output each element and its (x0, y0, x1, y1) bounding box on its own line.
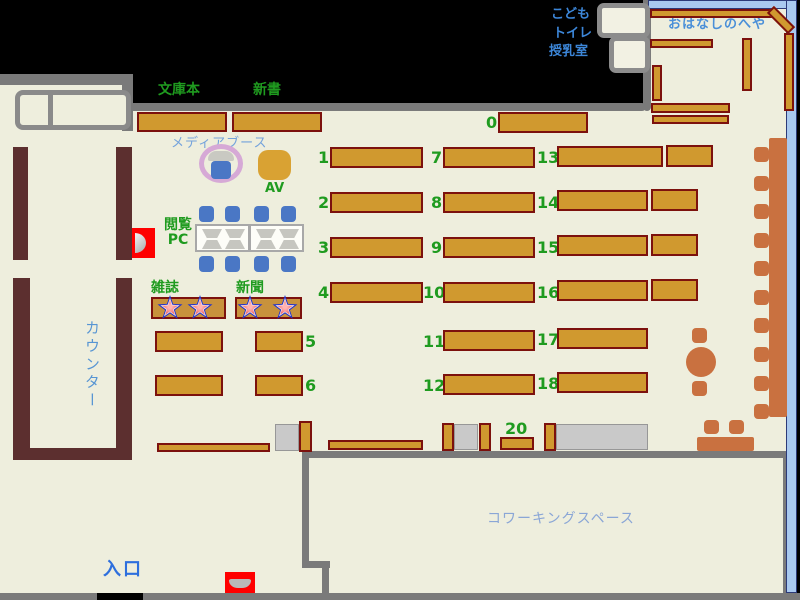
shelf-0 (498, 112, 588, 133)
shelf-14-label: 14 (537, 193, 559, 213)
shelf-11 (443, 330, 535, 351)
star-icon (237, 295, 263, 321)
shelf-0-label: 0 (486, 113, 497, 133)
bookshelf (255, 375, 303, 396)
service-desk (15, 90, 131, 130)
new-books-shelf (232, 112, 322, 132)
table (454, 424, 478, 450)
pc-chair (254, 206, 269, 222)
shelf-7 (443, 147, 535, 168)
new-books-label: 新書 (253, 83, 281, 98)
wall-coworking-top (302, 451, 789, 458)
pc-table (249, 224, 304, 252)
toilet-room-lower (609, 36, 650, 73)
counter-wall (116, 278, 132, 448)
shelf-12-label: 12 (423, 376, 445, 396)
shelf-4 (330, 282, 423, 303)
newspapers-label: 新聞 (236, 281, 264, 296)
monitor-icon (202, 229, 222, 238)
pc-chair (199, 256, 214, 272)
paperback-label: 文庫本 (158, 83, 200, 98)
toilet-label: トイレ (553, 26, 592, 41)
wall-main-top (133, 103, 646, 111)
pc-table (195, 224, 250, 252)
entrance-return-slot (225, 572, 255, 593)
coworking-space-label: コワーキングスペース (487, 512, 635, 527)
monitor-icon (225, 240, 245, 249)
av-label: AV (265, 181, 284, 196)
shelf-18 (557, 372, 648, 393)
monitor-icon (225, 229, 245, 238)
security-gate (132, 228, 155, 258)
desk-divider (48, 95, 53, 125)
return-slot-icon (229, 579, 251, 588)
chair (704, 420, 719, 434)
shelf-3 (330, 237, 423, 258)
chair (729, 420, 744, 434)
chair (754, 147, 769, 162)
chair (754, 318, 769, 333)
gate-sensor-icon (135, 233, 146, 253)
shelf-3-label: 3 (318, 238, 329, 258)
shelf-divider (544, 423, 556, 451)
shelf-16-label: 16 (537, 283, 559, 303)
low-shelf (328, 440, 423, 450)
wall-top-left (0, 74, 133, 85)
shelf-divider (299, 421, 312, 452)
story-room-shelf (652, 115, 729, 124)
bookshelf (651, 279, 698, 301)
av-station (258, 150, 291, 180)
counter-wall (116, 147, 132, 260)
chair (754, 261, 769, 276)
shelf-14 (557, 190, 648, 211)
shelf-12 (443, 374, 535, 395)
chair (754, 176, 769, 191)
story-room-shelf (784, 33, 794, 111)
counter-wall (13, 278, 30, 460)
pc-chair (281, 256, 296, 272)
bookshelf (155, 331, 223, 352)
shelf-4-label: 4 (318, 283, 329, 303)
story-room-label: おはなしのへや (668, 17, 766, 32)
bookshelf (651, 189, 698, 211)
toilet-room-upper (597, 3, 650, 38)
window-counter-bench (769, 138, 787, 417)
library-floor-map: こども トイレ 授乳室 おはなしのへや 文庫本 新書 0 メディアブース AV (0, 0, 800, 600)
chair (754, 404, 769, 419)
monitor-icon (202, 240, 222, 249)
shelf-17 (557, 328, 648, 349)
shelf-16 (557, 280, 648, 301)
story-room-shelf (652, 65, 662, 101)
monitor-icon (279, 229, 299, 238)
low-shelf (157, 443, 270, 452)
bookshelf (155, 375, 223, 396)
wall-bottom-right (143, 593, 800, 600)
chair (754, 204, 769, 219)
entrance-label: 入口 (103, 562, 143, 577)
wall-bottom-left (0, 593, 97, 600)
shelf-20 (500, 437, 534, 450)
shelf-5-label: 5 (305, 332, 316, 352)
table (556, 424, 648, 450)
shelf-8 (443, 192, 535, 213)
star-icon (187, 295, 213, 321)
shelf-divider (479, 423, 491, 451)
shelf-18-label: 18 (537, 374, 559, 394)
shelf-13 (557, 146, 663, 167)
story-room-shelf (650, 9, 772, 18)
nursing-room-label: 授乳室 (549, 44, 588, 59)
shelf-2 (330, 192, 423, 213)
shelf-1-label: 1 (318, 148, 329, 168)
story-room-shelf (650, 39, 713, 48)
table (697, 437, 754, 451)
monitor-icon (256, 240, 276, 249)
shelf-15 (557, 235, 648, 256)
story-room-shelf (651, 103, 730, 113)
shelf-10-label: 10 (423, 283, 445, 303)
bookshelf (651, 234, 698, 256)
wall-coworking-left (302, 451, 309, 568)
chair (754, 347, 769, 362)
shelf-2-label: 2 (318, 193, 329, 213)
chair (754, 376, 769, 391)
star-icon (157, 295, 183, 321)
shelf-20-label: 20 (505, 419, 527, 439)
shelf-6-label: 6 (305, 376, 316, 396)
shelf-9-label: 9 (431, 238, 442, 258)
shelf-15-label: 15 (537, 238, 559, 258)
chair (692, 381, 707, 396)
bookshelf (255, 331, 303, 352)
chair (692, 328, 707, 343)
media-booth-monitor (208, 151, 234, 161)
pc-chair (225, 256, 240, 272)
bookshelf (666, 145, 713, 167)
monitor-icon (279, 240, 299, 249)
pc-chair (199, 206, 214, 222)
monitor-icon (256, 229, 276, 238)
round-table (686, 347, 716, 377)
shelf-13-label: 13 (537, 148, 559, 168)
paperback-shelf (137, 112, 227, 132)
browsing-pc-label: 閲覧 PC (163, 218, 193, 248)
shelf-9 (443, 237, 535, 258)
shelf-11-label: 11 (423, 332, 445, 352)
pc-chair (254, 256, 269, 272)
counter-wall (13, 448, 132, 460)
pc-chair (225, 206, 240, 222)
shelf-divider (442, 423, 454, 451)
story-room-shelf (742, 38, 752, 91)
counter-wall (13, 147, 28, 260)
media-booth-seat (211, 161, 231, 179)
kids-label: こども (551, 7, 590, 22)
shelf-17-label: 17 (537, 330, 559, 350)
shelf-8-label: 8 (431, 193, 442, 213)
chair (754, 290, 769, 305)
table (275, 424, 299, 451)
wall-coworking-left-lower (322, 561, 329, 600)
shelf-7-label: 7 (431, 148, 442, 168)
counter-label: カウンター (84, 320, 99, 415)
pc-chair (281, 206, 296, 222)
shelf-1 (330, 147, 423, 168)
magazines-label: 雑誌 (151, 281, 179, 296)
star-icon (272, 295, 298, 321)
shelf-10 (443, 282, 535, 303)
chair (754, 233, 769, 248)
